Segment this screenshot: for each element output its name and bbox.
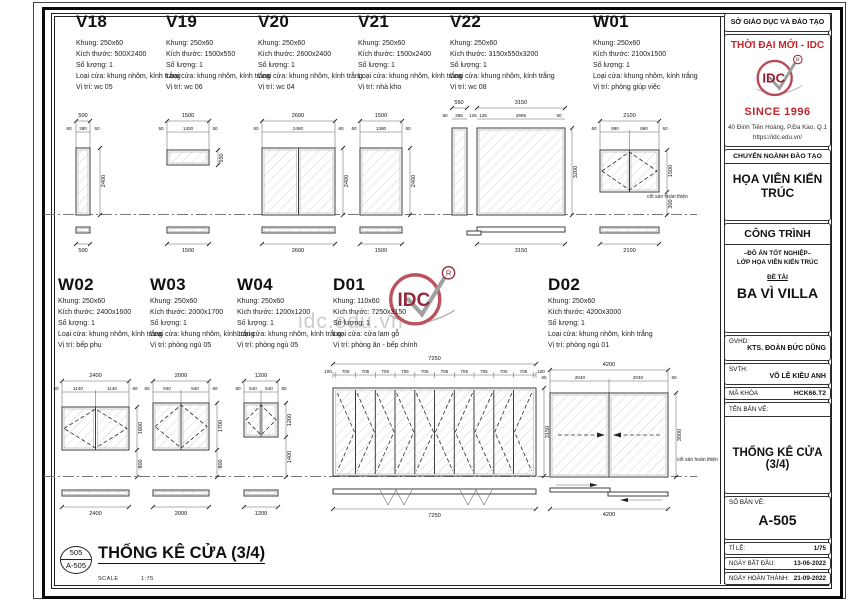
w03-elevation-drawing: 2000 60 940 940 60 1700 800 2000 bbox=[142, 365, 230, 519]
svg-text:125: 125 bbox=[479, 113, 487, 118]
end-date-value: 21-09-2022 bbox=[794, 575, 826, 582]
svg-text:60: 60 bbox=[66, 126, 72, 131]
address: 40 Đinh Tiên Hoàng, P.Đa Kao, Q.1 bbox=[727, 124, 828, 131]
spec-line: Kích thước: 3150x550x3200 bbox=[450, 49, 555, 60]
gvhd-label: GVHD: bbox=[729, 338, 826, 345]
w01-elevation-drawing: 2100 60 990 990 60 1500 300 2100 bbox=[584, 105, 686, 255]
start-date-label: NGÀY BẮT ĐẦU: bbox=[729, 561, 775, 567]
spec-line: Khung: 250x60 bbox=[76, 38, 181, 49]
svg-text:60: 60 bbox=[281, 386, 287, 391]
spec-line: Khung: 250x60 bbox=[593, 38, 698, 49]
scale-value: 1/75 bbox=[814, 545, 826, 552]
v18-elevation-drawing: 500 60 380 60 2400 500 bbox=[48, 105, 120, 255]
spec-line: Loại cửa: khung nhôm, kính trắng bbox=[76, 71, 181, 82]
spec-line: Kích thước: 4200x3000 bbox=[548, 307, 653, 318]
svg-text:2400: 2400 bbox=[411, 175, 417, 187]
project-line2: LỚP HỌA VIÊN KIẾN TRÚC bbox=[725, 259, 830, 266]
v22-elevation-drawing: 550 60 365 125 3150 125 2965 60 3200 315… bbox=[436, 95, 582, 259]
drawing-sheet: IDC R idc.edu.vn cốt sàn hoàn thiện cốt … bbox=[0, 0, 850, 601]
spec-line: Số lượng: 1 bbox=[548, 318, 653, 329]
svg-text:540: 540 bbox=[265, 386, 273, 391]
unit-title-v19: V19 bbox=[166, 12, 197, 32]
unit-title-d01: D01 bbox=[333, 275, 365, 295]
code-value: HCK66.T2 bbox=[794, 390, 826, 397]
title-block: SỞ GIÁO DỤC VÀ ĐÀO TẠO THỜI ĐẠI MỚI - ID… bbox=[724, 13, 831, 585]
svg-text:7250: 7250 bbox=[428, 513, 440, 519]
svg-text:1500: 1500 bbox=[375, 248, 387, 254]
svg-text:705: 705 bbox=[362, 369, 370, 374]
unit-specs-d01: Khung: 110x60 Kích thước: 7250x3150 Số l… bbox=[333, 296, 417, 351]
spec-line: Vị trí: phòng ngủ 01 bbox=[548, 340, 653, 351]
svg-text:2965: 2965 bbox=[516, 113, 527, 118]
spec-line: Số lượng: 1 bbox=[237, 318, 342, 329]
floor-label-bottom: cốt sàn hoàn thiện bbox=[677, 457, 718, 463]
svg-text:705: 705 bbox=[460, 369, 468, 374]
unit-specs-v18: Khung: 250x60 Kích thước: 500X2400 Số lư… bbox=[76, 38, 181, 93]
unit-specs-d02: Khung: 250x60 Kích thước: 4200x3000 Số l… bbox=[548, 296, 653, 351]
spec-line: Loại cửa: khung nhôm, kính trắng bbox=[450, 71, 555, 82]
spec-line: Số lượng: 1 bbox=[76, 60, 181, 71]
spec-line: Khung: 250x60 bbox=[258, 38, 363, 49]
spec-line: Khung: 110x60 bbox=[333, 296, 417, 307]
svg-text:1400: 1400 bbox=[183, 126, 194, 131]
svg-text:2400: 2400 bbox=[89, 511, 101, 517]
unit-specs-v20: Khung: 250x60 Kích thước: 2600x2400 Số l… bbox=[258, 38, 363, 93]
spec-line: Kích thước: 2100x1500 bbox=[593, 49, 698, 60]
svg-text:705: 705 bbox=[520, 369, 528, 374]
v19-elevation-drawing: 1500 50 1400 50 550 1500 bbox=[150, 105, 234, 255]
bubble-top: 505 bbox=[61, 547, 91, 560]
unit-specs-w04: Khung: 250x60 Kích thước: 1200x1200 Số l… bbox=[237, 296, 342, 351]
svg-text:50: 50 bbox=[158, 126, 164, 131]
title-block-logo-box: THỜI ĐẠI MỚI - IDC SINCE 1996 40 Đinh Ti… bbox=[724, 34, 831, 147]
spec-line: Kích thước: 2400x1600 bbox=[58, 307, 163, 318]
svg-text:705: 705 bbox=[500, 369, 508, 374]
training-name: HỌA VIÊN KIẾN TRÚC bbox=[725, 164, 830, 208]
svg-text:705: 705 bbox=[480, 369, 488, 374]
spec-line: Số lượng: 1 bbox=[58, 318, 163, 329]
unit-title-v21: V21 bbox=[358, 12, 389, 32]
title-block-drawing-name: TÊN BẢN VẼ: THỐNG KÊ CỬA (3/4) bbox=[724, 402, 831, 494]
spec-line: Loại cửa: khung nhôm, kính trắng bbox=[258, 71, 363, 82]
footer-scale-value: 1:75 bbox=[141, 576, 154, 582]
svg-text:705: 705 bbox=[421, 369, 429, 374]
spec-line: Kích thước: 500X2400 bbox=[76, 49, 181, 60]
svg-text:50: 50 bbox=[212, 126, 218, 131]
drawing-name-label: TÊN BẢN VẼ: bbox=[725, 403, 830, 417]
svg-text:60: 60 bbox=[212, 386, 218, 391]
topic-label: ĐỀ TÀI bbox=[725, 274, 830, 281]
footer-drawing-title: THỐNG KÊ CỬA (3/4) bbox=[98, 544, 265, 564]
svg-text:705: 705 bbox=[441, 369, 449, 374]
svg-text:705: 705 bbox=[381, 369, 389, 374]
brand-name: THỜI ĐẠI MỚI - IDC bbox=[727, 40, 828, 51]
svth-name: VÕ LÊ KIỀU ANH bbox=[729, 373, 826, 380]
title-block-sheet-no: SỐ BẢN VẼ: A-505 bbox=[724, 496, 831, 540]
footer-scale-label: SCALE bbox=[98, 576, 119, 582]
svg-text:3150: 3150 bbox=[515, 248, 527, 254]
spec-line: Vị trí: phòng ngủ 05 bbox=[237, 340, 342, 351]
sheet-no-label: SỐ BẢN VẼ: bbox=[729, 499, 826, 506]
svg-text:500: 500 bbox=[78, 248, 87, 254]
svg-text:60: 60 bbox=[556, 113, 562, 118]
spec-line: Kích thước: 1500x550 bbox=[166, 49, 271, 60]
spec-line: Khung: 250x60 bbox=[548, 296, 653, 307]
start-date-value: 13-06-2022 bbox=[794, 560, 826, 567]
title-block-start-date: NGÀY BẮT ĐẦU: 13-06-2022 bbox=[724, 557, 831, 570]
svg-text:1700: 1700 bbox=[218, 420, 224, 432]
d01-elevation-drawing: 7250 100 705 705 705 705 705 705 705 705… bbox=[320, 353, 558, 519]
title-block-code: MÃ KHÓA HCK66.T2 bbox=[724, 387, 831, 400]
svg-text:500: 500 bbox=[78, 113, 87, 119]
svg-text:540: 540 bbox=[249, 386, 257, 391]
svg-text:550: 550 bbox=[454, 100, 463, 106]
training-header: CHUYÊN NGÀNH ĐÀO TẠO bbox=[725, 150, 830, 164]
title-block-training: CHUYÊN NGÀNH ĐÀO TẠO HỌA VIÊN KIẾN TRÚC bbox=[724, 149, 831, 221]
spec-line: Kích thước: 2600x2400 bbox=[258, 49, 363, 60]
spec-line: Số lượng: 1 bbox=[358, 60, 463, 71]
svg-text:1200: 1200 bbox=[287, 414, 293, 426]
svg-text:4200: 4200 bbox=[603, 512, 615, 518]
svg-text:1500: 1500 bbox=[375, 113, 387, 119]
svg-text:3150: 3150 bbox=[515, 100, 527, 106]
title-block-scale: TỈ LỆ: 1/75 bbox=[724, 542, 831, 555]
svg-text:2100: 2100 bbox=[623, 248, 635, 254]
svg-text:1140: 1140 bbox=[107, 386, 117, 391]
project-line1: –ĐỒ ÁN TỐT NGHIỆP– bbox=[725, 250, 830, 257]
svg-text:2400: 2400 bbox=[89, 373, 101, 379]
floor-label-top: cốt sàn hoàn thiện bbox=[647, 194, 688, 200]
svg-text:550: 550 bbox=[219, 153, 225, 162]
svg-text:60: 60 bbox=[94, 126, 100, 131]
unit-title-d02: D02 bbox=[548, 275, 580, 295]
unit-title-v20: V20 bbox=[258, 12, 289, 32]
svg-text:60: 60 bbox=[351, 126, 357, 131]
svg-text:705: 705 bbox=[401, 369, 409, 374]
since-label: SINCE 1996 bbox=[727, 106, 828, 118]
svg-text:990: 990 bbox=[640, 126, 648, 131]
svg-text:60: 60 bbox=[405, 126, 411, 131]
svg-text:60: 60 bbox=[144, 386, 150, 391]
topic-name: BA VÌ VILLA bbox=[725, 285, 830, 301]
spec-line: Vị trí: bếp phụ bbox=[58, 340, 163, 351]
svg-text:1500: 1500 bbox=[182, 113, 194, 119]
svg-text:2400: 2400 bbox=[101, 175, 107, 187]
unit-title-w01: W01 bbox=[593, 12, 629, 32]
spec-line: Vị trí: phòng ăn - bếp chính bbox=[333, 340, 417, 351]
svg-text:60: 60 bbox=[541, 375, 547, 380]
unit-title-w04: W04 bbox=[237, 275, 273, 295]
spec-line: Vị trí: wc 04 bbox=[258, 82, 363, 93]
v21-elevation-drawing: 1500 60 1380 60 2400 1500 bbox=[344, 105, 426, 255]
svg-text:3000: 3000 bbox=[677, 429, 683, 441]
svg-text:1380: 1380 bbox=[376, 126, 387, 131]
footer-drawing-title-wrap: THỐNG KÊ CỬA (3/4) SCALE 1:75 bbox=[98, 544, 265, 585]
spec-line: Khung: 250x60 bbox=[358, 38, 463, 49]
v20-elevation-drawing: 2600 60 2480 60 2400 2600 bbox=[246, 105, 350, 255]
unit-specs-w01: Khung: 250x60 Kích thước: 2100x1500 Số l… bbox=[593, 38, 698, 93]
spec-line: Vị trí: nhà kho bbox=[358, 82, 463, 93]
svg-text:60: 60 bbox=[442, 113, 448, 118]
unit-specs-v21: Khung: 250x60 Kích thước: 1500x2400 Số l… bbox=[358, 38, 463, 93]
spec-line: Số lượng: 1 bbox=[258, 60, 363, 71]
svg-text:1200: 1200 bbox=[255, 373, 267, 379]
svg-text:60: 60 bbox=[235, 386, 241, 391]
spec-line: Loại cửa: khung nhôm, kính trắng bbox=[237, 329, 342, 340]
svg-text:1140: 1140 bbox=[73, 386, 83, 391]
svg-text:60: 60 bbox=[662, 126, 668, 131]
svg-text:300: 300 bbox=[668, 199, 674, 208]
svg-text:990: 990 bbox=[611, 126, 619, 131]
spec-line: Kích thước: 1200x1200 bbox=[237, 307, 342, 318]
spec-line: Kích thước: 1500x2400 bbox=[358, 49, 463, 60]
gvhd-name: KTS. ĐOÀN ĐỨC DŨNG bbox=[729, 345, 826, 352]
svg-text:365: 365 bbox=[455, 113, 463, 118]
svg-text:1500: 1500 bbox=[182, 248, 194, 254]
svg-text:2040: 2040 bbox=[633, 375, 644, 380]
svg-text:800: 800 bbox=[218, 459, 224, 468]
svg-text:125: 125 bbox=[469, 113, 477, 118]
svg-text:380: 380 bbox=[79, 126, 87, 131]
svg-text:940: 940 bbox=[191, 386, 199, 391]
spec-line: Khung: 250x60 bbox=[450, 38, 555, 49]
svg-text:2600: 2600 bbox=[292, 113, 304, 119]
spec-line: Số lượng: 1 bbox=[166, 60, 271, 71]
scale-label: TỈ LỆ: bbox=[729, 546, 745, 552]
unit-specs-v22: Khung: 250x60 Kích thước: 3150x550x3200 … bbox=[450, 38, 555, 93]
dept-label: SỞ GIÁO DỤC VÀ ĐÀO TẠO bbox=[727, 19, 828, 26]
svg-text:60: 60 bbox=[132, 386, 138, 391]
spec-line: Vị trí: wc 08 bbox=[450, 82, 555, 93]
svg-text:100: 100 bbox=[324, 369, 332, 374]
title-block-gvhd: GVHD: KTS. ĐOÀN ĐỨC DŨNG bbox=[724, 335, 831, 361]
svg-text:60: 60 bbox=[591, 126, 597, 131]
code-label: MÃ KHÓA bbox=[729, 390, 758, 397]
svg-text:2000: 2000 bbox=[175, 511, 187, 517]
idc-logo bbox=[752, 53, 804, 101]
spec-line: Vị trí: wc 05 bbox=[76, 82, 181, 93]
w04-elevation-drawing: 1200 60 540 540 60 1200 1400 1200 bbox=[228, 365, 296, 519]
svg-text:60: 60 bbox=[253, 126, 259, 131]
svg-text:705: 705 bbox=[342, 369, 350, 374]
svg-text:60: 60 bbox=[671, 375, 677, 380]
unit-title-w02: W02 bbox=[58, 275, 94, 295]
sheet-no: A-505 bbox=[729, 512, 826, 528]
svg-text:1400: 1400 bbox=[287, 451, 293, 463]
drawing-number-bubble: 505 A-505 bbox=[60, 546, 92, 574]
end-date-label: NGÀY HOÀN THÀNH: bbox=[729, 576, 789, 582]
svg-text:2040: 2040 bbox=[575, 375, 586, 380]
svg-text:2000: 2000 bbox=[175, 373, 187, 379]
w02-elevation-drawing: 2400 60 1140 1140 60 1600 800 2400 bbox=[48, 365, 150, 519]
spec-line: Kích thước: 7250x3150 bbox=[333, 307, 417, 318]
spec-line: Loại cửa: khung nhôm, kính trắng bbox=[166, 71, 271, 82]
svg-text:2480: 2480 bbox=[293, 126, 304, 131]
spec-line: Khung: 250x60 bbox=[166, 38, 271, 49]
spec-line: Số lượng: 1 bbox=[450, 60, 555, 71]
spec-line: Loại cửa: khung nhôm, kính trắng bbox=[58, 329, 163, 340]
spec-line: Vị trí: wc 06 bbox=[166, 82, 271, 93]
svg-text:3200: 3200 bbox=[573, 166, 579, 178]
title-block-svth: SVTH: VÕ LÊ KIỀU ANH bbox=[724, 363, 831, 385]
spec-line: Khung: 250x60 bbox=[58, 296, 163, 307]
spec-line: Loại cửa: khung nhôm, kính trắng bbox=[593, 71, 698, 82]
title-block-end-date: NGÀY HOÀN THÀNH: 21-09-2022 bbox=[724, 572, 831, 585]
svg-text:940: 940 bbox=[163, 386, 171, 391]
d02-elevation-drawing: 4200 60 2040 2040 60 3000 4200 bbox=[536, 357, 692, 519]
bubble-bottom: A-505 bbox=[61, 560, 91, 572]
website-link[interactable]: https://idc.edu.vn/ bbox=[727, 134, 828, 141]
drawing-name: THỐNG KÊ CỬA (3/4) bbox=[725, 447, 830, 471]
svg-text:4200: 4200 bbox=[603, 362, 615, 368]
svg-text:1200: 1200 bbox=[255, 511, 267, 517]
title-block-dept: SỞ GIÁO DỤC VÀ ĐÀO TẠO bbox=[724, 13, 831, 32]
spec-line: Số lượng: 1 bbox=[593, 60, 698, 71]
unit-title-w03: W03 bbox=[150, 275, 186, 295]
unit-title-v18: V18 bbox=[76, 12, 107, 32]
svg-text:7250: 7250 bbox=[428, 356, 440, 362]
svth-label: SVTH: bbox=[729, 366, 826, 373]
svg-text:60: 60 bbox=[53, 386, 59, 391]
title-block-project: CÔNG TRÌNH –ĐỒ ÁN TỐT NGHIỆP– LỚP HỌA VI… bbox=[724, 223, 831, 333]
svg-text:1500: 1500 bbox=[668, 165, 674, 177]
spec-line: Khung: 250x60 bbox=[237, 296, 342, 307]
unit-specs-v19: Khung: 250x60 Kích thước: 1500x550 Số lư… bbox=[166, 38, 271, 93]
svg-text:2100: 2100 bbox=[623, 113, 635, 119]
project-header: CÔNG TRÌNH bbox=[725, 224, 830, 245]
spec-line: Loại cửa: khung nhôm, kính trắng bbox=[548, 329, 653, 340]
unit-title-v22: V22 bbox=[450, 12, 481, 32]
unit-specs-w02: Khung: 250x60 Kích thước: 2400x1600 Số l… bbox=[58, 296, 163, 351]
spec-line: Loại cửa: khung nhôm, kính trắng bbox=[358, 71, 463, 82]
spec-line: Loại cửa: cửa lam gỗ bbox=[333, 329, 417, 340]
svg-text:2600: 2600 bbox=[292, 248, 304, 254]
spec-line: Vị trí: phòng giúp việc bbox=[593, 82, 698, 93]
spec-line: Số lượng: 1 bbox=[333, 318, 417, 329]
